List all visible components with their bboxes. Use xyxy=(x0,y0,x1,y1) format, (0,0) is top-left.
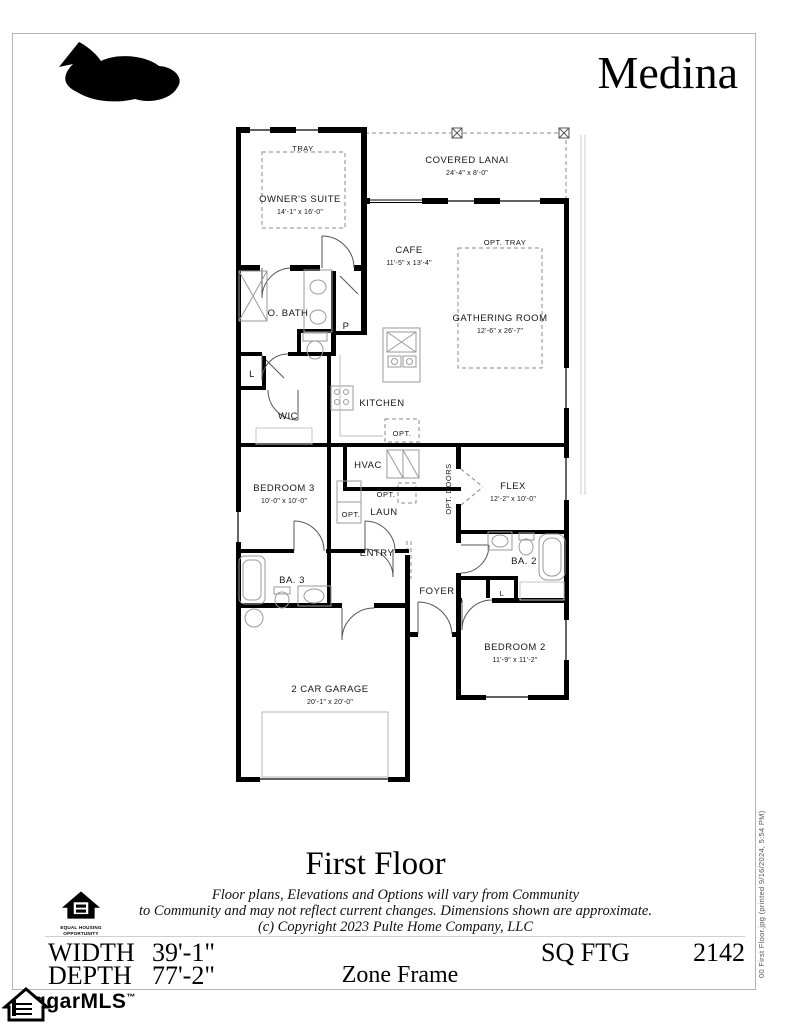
room-label-entry: ENTRY xyxy=(360,548,395,559)
room-dims-bedroom2: 11'-9" x 11'-2" xyxy=(492,657,537,664)
room-label-bedroom3: BEDROOM 3 xyxy=(253,483,315,494)
zone-label: Zone Frame xyxy=(290,962,510,989)
room-label-covered-lanai: COVERED LANAI xyxy=(425,155,509,166)
room-dims-garage: 20'-1" x 20'-0" xyxy=(307,699,353,706)
floor-plan-sheet: { "header": { "title": "Medina" }, "plan… xyxy=(0,0,791,1024)
room-dims-bedroom3: 10'-0" x 10'-0" xyxy=(261,498,307,505)
room-label-opt-doors: OPT. DOORS xyxy=(444,463,453,514)
room-label-kitchen: KITCHEN xyxy=(359,398,404,409)
depth-label: DEPTH xyxy=(48,963,132,989)
room-dims-owners-suite: 14'-1" x 16'-0" xyxy=(277,209,323,216)
disclaimer-line-2: to Community and may not reflect current… xyxy=(60,904,731,920)
room-label-opt-laun: OPT. xyxy=(342,510,361,519)
room-dims-covered-lanai: 24'-4" x 8'-0" xyxy=(446,170,488,177)
room-label-wic: WIC xyxy=(278,411,298,422)
sqftg-value: 2142 xyxy=(693,940,745,966)
room-label-bedroom2: BEDROOM 2 xyxy=(484,642,546,653)
room-label-laun: LAUN xyxy=(370,507,397,518)
room-label-linen2: L xyxy=(500,589,505,598)
lanai-post-icons xyxy=(452,128,569,138)
room-label-gathering-room: GATHERING ROOM xyxy=(453,313,548,324)
disclaimer-line-1: Floor plans, Elevations and Options will… xyxy=(60,888,731,904)
room-label-opt-kitchen: OPT. xyxy=(393,429,412,438)
disclaimer-line-3: (c) Copyright 2023 Pulte Home Company, L… xyxy=(60,920,731,936)
sqftg-label: SQ FTG xyxy=(541,940,630,966)
floor-title: First Floor xyxy=(0,846,751,883)
room-label-garage: 2 CAR GARAGE xyxy=(291,684,368,695)
equal-housing-text-line1: EQUAL HOUSING xyxy=(52,925,110,931)
room-label-foyer: FOYER xyxy=(419,586,454,597)
room-label-ba2: BA. 2 xyxy=(511,556,537,567)
room-label-pantry: P xyxy=(343,321,350,332)
room-label-tray: TRAY xyxy=(292,144,313,153)
print-note: 00 First Floor.jpg (printed 9/16/2024, 5… xyxy=(757,810,766,978)
room-label-linen1: L xyxy=(249,369,255,380)
equal-housing-icon xyxy=(61,890,101,920)
room-dims-flex: 12'-2" x 10'-0" xyxy=(490,496,536,503)
footer-divider xyxy=(45,936,745,937)
disclaimer: Floor plans, Elevations and Options will… xyxy=(60,888,731,936)
mls-trademark: ™ xyxy=(126,992,136,1002)
room-label-o-bath: O. BATH xyxy=(268,308,309,319)
room-label-cafe: CAFE xyxy=(395,245,422,256)
roof-overhang-lines xyxy=(581,135,585,495)
room-label-hvac: HVAC xyxy=(354,460,382,471)
room-label-flex: FLEX xyxy=(500,481,526,492)
depth-value: 77'-2" xyxy=(152,963,215,989)
room-label-ba3: BA. 3 xyxy=(279,575,305,586)
room-dims-cafe: 11'-5" x 13'-4" xyxy=(386,260,432,267)
house-icon xyxy=(2,986,50,1022)
room-label-owners-suite: OWNER'S SUITE xyxy=(259,194,341,205)
equal-housing-logo: EQUAL HOUSING OPPORTUNITY xyxy=(52,890,110,936)
room-dims-gathering-room: 12'-6" x 26'-7" xyxy=(477,328,523,335)
room-label-opt-hvac: OPT. xyxy=(377,490,396,499)
fixtures-group xyxy=(239,270,565,777)
room-label-opt-tray: OPT. TRAY xyxy=(484,238,527,247)
